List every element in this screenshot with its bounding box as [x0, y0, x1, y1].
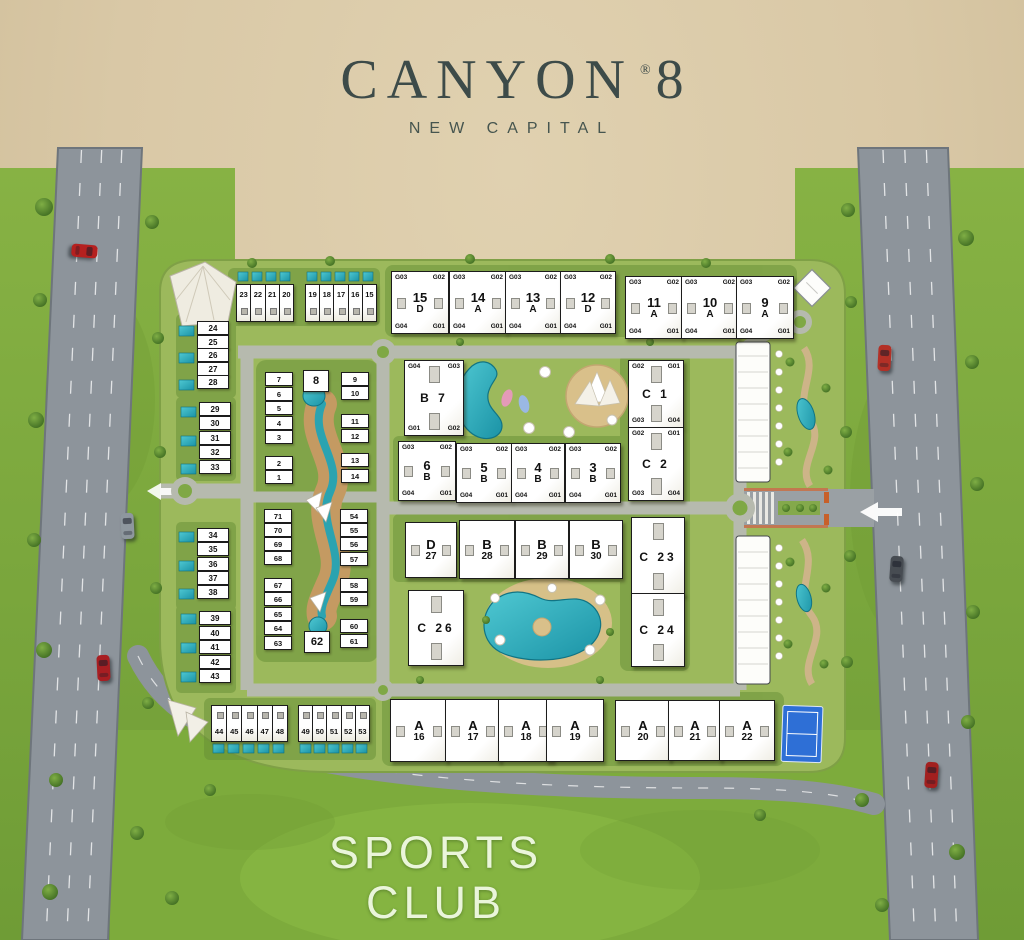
building-label-top: 10 — [703, 296, 717, 309]
building-label-top: A — [414, 719, 423, 732]
unit-27[interactable]: 27 — [197, 362, 229, 376]
building-label-top: A — [638, 719, 647, 732]
unit-32[interactable]: 32 — [199, 445, 231, 459]
townhouse-number: 16 — [349, 290, 362, 299]
villa-70[interactable]: 70 — [264, 523, 292, 537]
building-label: A18 — [499, 700, 553, 761]
unit-36[interactable]: 36 — [197, 557, 229, 571]
unit-34[interactable]: 34 — [197, 528, 229, 542]
building-9-A[interactable]: G03G02G04G019A — [736, 276, 794, 339]
villa-59[interactable]: 59 — [340, 592, 368, 606]
entry-mark — [367, 308, 374, 315]
villa-71[interactable]: 71 — [264, 509, 292, 523]
entry-mark — [270, 308, 277, 315]
building-label-bottom: B — [534, 475, 541, 485]
townhouse-number: 17 — [334, 290, 347, 299]
building-label-top: 12 — [581, 291, 595, 304]
entry-mark — [332, 712, 339, 719]
townhouse-44[interactable]: 44 — [212, 706, 227, 741]
building-label: 6B — [399, 442, 455, 500]
building-label: A20 — [616, 701, 670, 760]
villa-60[interactable]: 60 — [340, 619, 368, 633]
building-label: 13A — [506, 272, 560, 333]
sports-club-line2: CLUB — [286, 878, 586, 928]
villa-55[interactable]: 55 — [340, 523, 368, 537]
unit-33[interactable]: 33 — [199, 460, 231, 474]
building-label-top: 13 — [526, 291, 540, 304]
townhouse-22[interactable]: 22 — [251, 285, 265, 321]
townhouse-19[interactable]: 19 — [306, 285, 320, 321]
building-label: A21 — [669, 701, 721, 760]
building-C-1[interactable]: G02G01G03G04C 1 — [628, 360, 684, 428]
townhouse-number: 46 — [242, 727, 256, 736]
entry-mark — [262, 712, 269, 719]
villa-54[interactable]: 54 — [340, 509, 368, 523]
building-label: 11A — [626, 277, 682, 338]
townhouse-15[interactable]: 15 — [363, 285, 376, 321]
villa-3[interactable]: 3 — [265, 430, 293, 444]
villa-67[interactable]: 67 — [264, 578, 292, 592]
building-label-top: 5 — [480, 461, 487, 474]
townhouse-number: 21 — [266, 290, 279, 299]
building-label: C 23 — [632, 518, 684, 595]
building-label-top: 9 — [761, 296, 768, 309]
building-label-top: A — [690, 719, 699, 732]
building-B-28[interactable]: B28 — [459, 520, 515, 579]
townhouse-number: 49 — [299, 727, 312, 736]
building-label-bottom: A — [529, 305, 536, 315]
villa-1[interactable]: 1 — [265, 470, 293, 484]
building-label-bottom: D — [584, 305, 591, 315]
unit-43[interactable]: 43 — [199, 669, 231, 683]
building-A-22[interactable]: A22 — [719, 700, 775, 761]
villa-13[interactable]: 13 — [341, 453, 369, 467]
townhouse-number: 22 — [251, 290, 264, 299]
building-label-bottom: 20 — [637, 733, 648, 743]
car-left-2 — [120, 513, 134, 540]
car-left-3 — [96, 655, 110, 682]
townhouse-number: 44 — [212, 727, 226, 736]
entry-mark — [255, 308, 262, 315]
townhouse-number: 53 — [356, 727, 369, 736]
entry-mark — [310, 308, 317, 315]
villa-65[interactable]: 65 — [264, 607, 292, 621]
townhouse-46[interactable]: 46 — [242, 706, 257, 741]
building-label: C 1 — [629, 361, 683, 427]
townhouse-48[interactable]: 48 — [273, 706, 287, 741]
building-label-top: B — [482, 538, 491, 551]
building-6-B[interactable]: G03G02G04G016B — [398, 441, 456, 501]
villa-61[interactable]: 61 — [340, 634, 368, 648]
building-label-top: A — [468, 719, 477, 732]
building-label: A17 — [446, 700, 500, 761]
building-C-26[interactable]: C 26 — [408, 590, 464, 666]
building-label: A22 — [720, 701, 774, 760]
unit-40[interactable]: 40 — [199, 626, 231, 640]
building-label-bottom: 21 — [689, 733, 700, 743]
townhouse-49[interactable]: 49 — [299, 706, 313, 741]
entry-mark — [232, 712, 239, 719]
townhouse-number: 48 — [273, 727, 287, 736]
car-left-1 — [71, 243, 98, 258]
building-label-top: 14 — [471, 291, 485, 304]
building-label-bottom: 28 — [481, 552, 492, 562]
building-D-27[interactable]: D27 — [405, 522, 457, 578]
townhouse-number: 15 — [363, 290, 376, 299]
townhouse-row-bottom-1: 4445464748 — [211, 705, 288, 742]
car-right-2 — [889, 556, 904, 583]
building-3-B[interactable]: G03G02G04G013B — [565, 443, 621, 503]
townhouse-number: 47 — [258, 727, 272, 736]
building-label-bottom: 17 — [467, 733, 478, 743]
building-label-top: A — [570, 719, 579, 732]
unit-41[interactable]: 41 — [199, 640, 231, 654]
building-label: C 2 — [629, 428, 683, 500]
entry-mark — [303, 712, 310, 719]
building-label-bottom: 27 — [425, 552, 436, 562]
building-label: C 24 — [632, 594, 684, 666]
townhouse-50[interactable]: 50 — [313, 706, 327, 741]
building-label-bottom: A — [761, 310, 768, 320]
unit-24[interactable]: 24 — [197, 321, 229, 335]
building-C-2[interactable]: G02G01G03G04C 2 — [628, 427, 684, 501]
building-label-bottom: 16 — [413, 733, 424, 743]
townhouse-number: 51 — [327, 727, 340, 736]
building-label-top: A — [742, 719, 751, 732]
sports-club-line1: SPORTS — [286, 828, 586, 878]
villa-6[interactable]: 6 — [265, 387, 293, 401]
building-14-A[interactable]: G03G02G04G0114A — [449, 271, 507, 334]
building-label: 10A — [682, 277, 738, 338]
building-label: 15D — [392, 272, 448, 333]
building-label: 3B — [566, 444, 620, 502]
building-label-top: B — [537, 538, 546, 551]
townhouse-row-bottom-2: 4950515253 — [298, 705, 370, 742]
unit-25[interactable]: 25 — [197, 335, 229, 349]
villa-5[interactable]: 5 — [265, 401, 293, 415]
unit-39[interactable]: 39 — [199, 611, 231, 625]
entry-mark — [217, 712, 224, 719]
building-label-bottom: 30 — [590, 552, 601, 562]
townhouse-number: 50 — [313, 727, 326, 736]
car-right-1 — [877, 345, 891, 372]
building-A-21[interactable]: A21 — [668, 700, 722, 761]
villa-4[interactable]: 4 — [265, 416, 293, 430]
building-label: B29 — [516, 521, 568, 578]
building-label-top: 15 — [413, 291, 427, 304]
building-label-bottom: B — [480, 475, 487, 485]
building-label-bottom: D — [416, 305, 423, 315]
building-A-17[interactable]: A17 — [445, 699, 501, 762]
building-C-24[interactable]: C 24 — [631, 593, 685, 667]
building-label-bottom: A — [706, 310, 713, 320]
villa-8[interactable]: 8 — [303, 370, 329, 392]
building-label-top: 6 — [423, 459, 430, 472]
building-label: 12D — [561, 272, 615, 333]
unit-30[interactable]: 30 — [199, 416, 231, 430]
building-label-bottom: A — [650, 310, 657, 320]
building-label-bottom: 18 — [520, 733, 531, 743]
unit-37[interactable]: 37 — [197, 571, 229, 585]
entry-mark — [353, 308, 360, 315]
building-label: A19 — [547, 700, 603, 761]
building-label: B30 — [570, 521, 622, 578]
entry-mark — [241, 308, 248, 315]
building-15-D[interactable]: G03G02G04G0115D — [391, 271, 449, 334]
building-label-bottom: 22 — [741, 733, 752, 743]
townhouse-number: 20 — [280, 290, 293, 299]
townhouse-17[interactable]: 17 — [334, 285, 348, 321]
townhouse-number: 18 — [320, 290, 333, 299]
building-label-bottom: B — [423, 473, 430, 483]
building-B-30[interactable]: B30 — [569, 520, 623, 579]
villa-7[interactable]: 7 — [265, 372, 293, 386]
villa-11[interactable]: 11 — [341, 414, 369, 428]
villa-2[interactable]: 2 — [265, 456, 293, 470]
sports-club-label: SPORTS CLUB — [286, 828, 586, 928]
villa-66[interactable]: 66 — [264, 592, 292, 606]
townhouse-23[interactable]: 23 — [237, 285, 251, 321]
entry-mark — [247, 712, 254, 719]
townhouse-52[interactable]: 52 — [342, 706, 356, 741]
buildings-layer: G03G02G04G0115DG03G02G04G0114AG03G02G04G… — [0, 0, 1024, 940]
entry-mark — [346, 712, 353, 719]
unit-35[interactable]: 35 — [197, 542, 229, 556]
townhouse-number: 45 — [227, 727, 241, 736]
building-A-20[interactable]: A20 — [615, 700, 671, 761]
villa-62[interactable]: 62 — [304, 631, 330, 653]
project-title: CANYON®8 NEW CAPITAL — [0, 48, 1024, 138]
villa-58[interactable]: 58 — [340, 578, 368, 592]
townhouse-51[interactable]: 51 — [327, 706, 341, 741]
building-10-A[interactable]: G03G02G04G0110A — [681, 276, 739, 339]
master-plan-canvas: CANYON®8 NEW CAPITAL G03G02G04G0115DG03G… — [0, 0, 1024, 940]
townhouse-row-top-1: 23222120 — [236, 284, 294, 322]
villa-57[interactable]: 57 — [340, 552, 368, 566]
villa-63[interactable]: 63 — [264, 636, 292, 650]
building-label-top: 11 — [647, 296, 661, 309]
building-label-top: D — [426, 538, 435, 551]
building-label-bottom: A — [474, 305, 481, 315]
building-B-7[interactable]: G04G03G01G02B 7 — [404, 360, 464, 436]
unit-38[interactable]: 38 — [197, 585, 229, 599]
brand-name: CANYON — [340, 49, 634, 111]
building-label: 14A — [450, 272, 506, 333]
building-label: B 7 — [405, 361, 463, 435]
villa-69[interactable]: 69 — [264, 537, 292, 551]
building-label: 9A — [737, 277, 793, 338]
building-label: A16 — [391, 700, 447, 761]
brand-number: 8 — [656, 49, 684, 111]
building-B-29[interactable]: B29 — [515, 520, 569, 579]
building-label-top: A — [521, 719, 530, 732]
registered-mark: ® — [640, 63, 651, 78]
entry-mark — [339, 308, 346, 315]
villa-56[interactable]: 56 — [340, 537, 368, 551]
building-13-A[interactable]: G03G02G04G0113A — [505, 271, 561, 334]
unit-29[interactable]: 29 — [199, 402, 231, 416]
villa-9[interactable]: 9 — [341, 372, 369, 386]
building-12-D[interactable]: G03G02G04G0112D — [560, 271, 616, 334]
building-label-bottom: 19 — [569, 733, 580, 743]
building-label-top: 4 — [534, 461, 541, 474]
townhouse-16[interactable]: 16 — [349, 285, 363, 321]
townhouse-18[interactable]: 18 — [320, 285, 334, 321]
building-label-bottom: 29 — [536, 552, 547, 562]
entry-mark — [360, 712, 367, 719]
entry-mark — [284, 308, 291, 315]
building-A-19[interactable]: A19 — [546, 699, 604, 762]
unit-31[interactable]: 31 — [199, 431, 231, 445]
building-label-top: B — [591, 538, 600, 551]
building-label: 4B — [512, 444, 564, 502]
unit-42[interactable]: 42 — [199, 655, 231, 669]
building-label: C 26 — [409, 591, 463, 665]
building-label: D27 — [406, 523, 456, 577]
building-label: 5B — [457, 444, 511, 502]
entry-mark — [317, 712, 324, 719]
unit-26[interactable]: 26 — [197, 348, 229, 362]
townhouse-number: 52 — [342, 727, 355, 736]
villa-12[interactable]: 12 — [341, 429, 369, 443]
townhouse-row-top-2: 1918171615 — [305, 284, 377, 322]
villa-10[interactable]: 10 — [341, 386, 369, 400]
villa-64[interactable]: 64 — [264, 621, 292, 635]
building-label: B28 — [460, 521, 514, 578]
entry-mark — [277, 712, 284, 719]
townhouse-number: 19 — [306, 290, 319, 299]
townhouse-21[interactable]: 21 — [266, 285, 280, 321]
building-A-16[interactable]: A16 — [390, 699, 448, 762]
townhouse-number: 23 — [237, 290, 250, 299]
building-11-A[interactable]: G03G02G04G0111A — [625, 276, 683, 339]
villa-14[interactable]: 14 — [341, 469, 369, 483]
building-label-top: 3 — [589, 461, 596, 474]
townhouse-45[interactable]: 45 — [227, 706, 242, 741]
villa-68[interactable]: 68 — [264, 551, 292, 565]
building-label-bottom: B — [589, 475, 596, 485]
building-5-B[interactable]: G03G02G04G015B — [456, 443, 512, 503]
building-4-B[interactable]: G03G02G04G014B — [511, 443, 565, 503]
building-C-23[interactable]: C 23 — [631, 517, 685, 596]
entry-mark — [324, 308, 331, 315]
project-subtitle: NEW CAPITAL — [0, 120, 1024, 138]
unit-28[interactable]: 28 — [197, 375, 229, 389]
townhouse-47[interactable]: 47 — [258, 706, 273, 741]
townhouse-20[interactable]: 20 — [280, 285, 293, 321]
car-right-3 — [924, 762, 939, 789]
townhouse-53[interactable]: 53 — [356, 706, 369, 741]
